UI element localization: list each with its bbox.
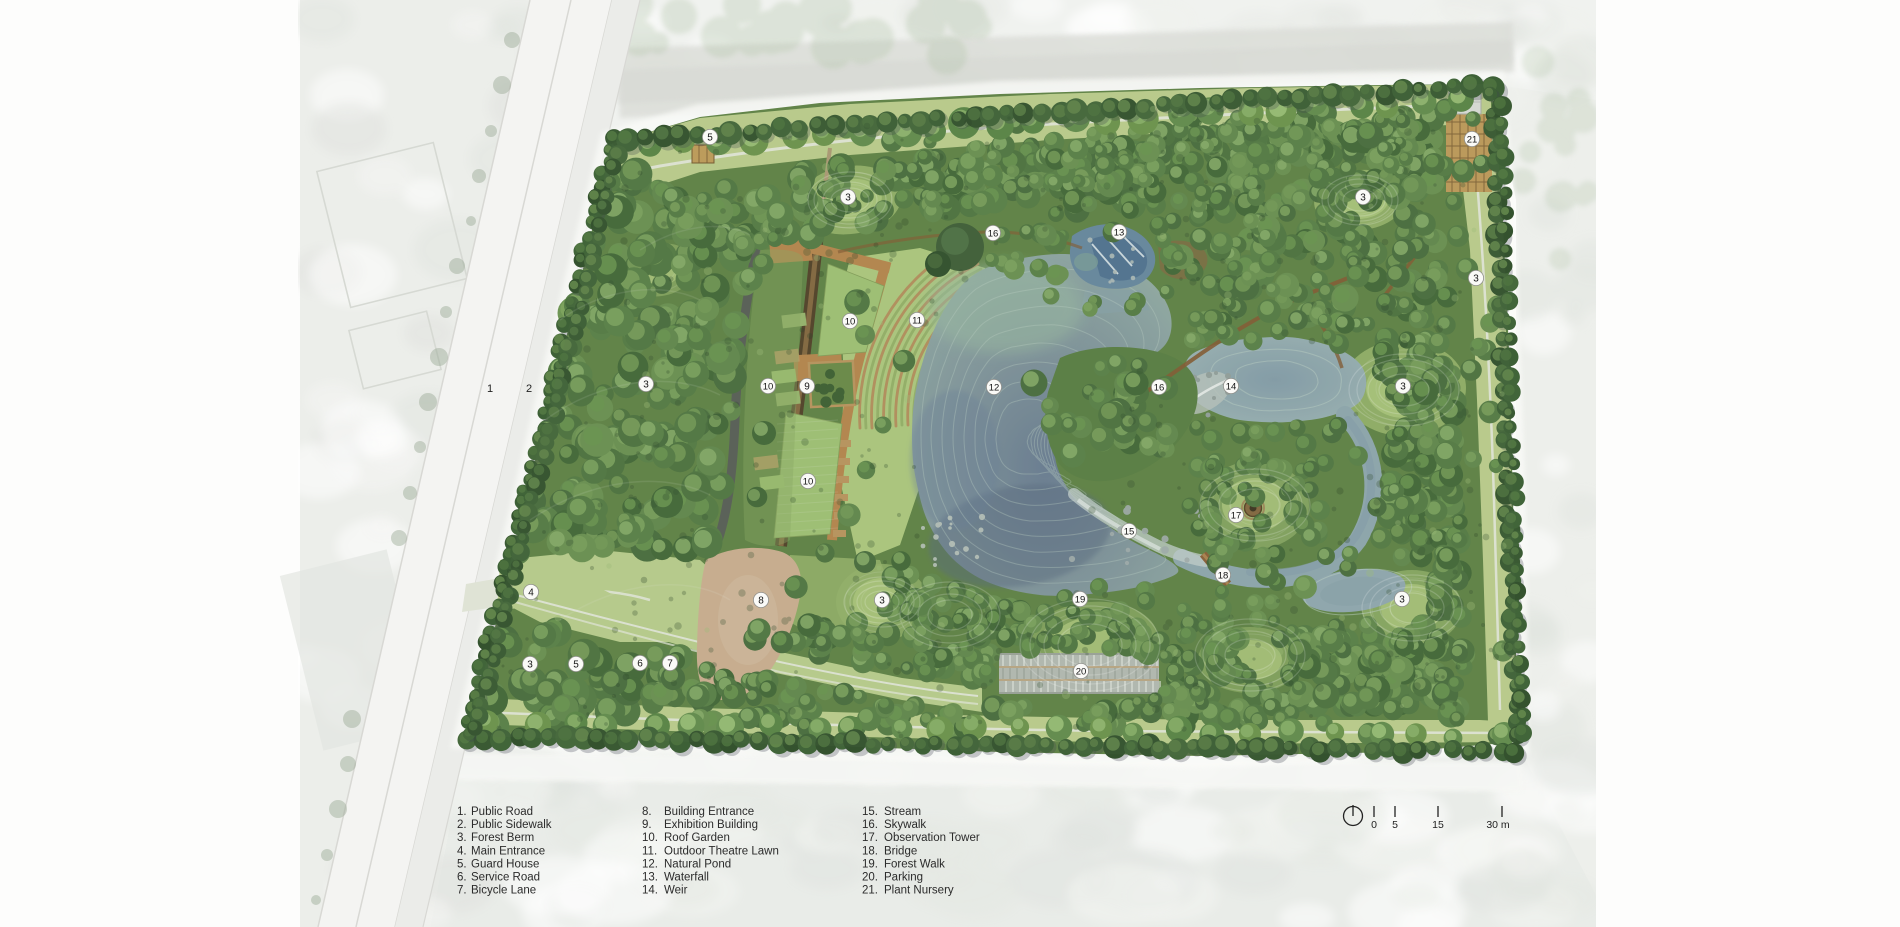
svg-text:7: 7: [667, 658, 673, 669]
svg-text:10: 10: [763, 381, 774, 392]
svg-text:20: 20: [1076, 666, 1087, 677]
svg-text:Public Road: Public Road: [471, 806, 533, 818]
svg-text:30 m: 30 m: [1486, 819, 1510, 831]
svg-text:3: 3: [879, 595, 885, 606]
svg-text:4: 4: [528, 587, 534, 598]
svg-text:Exhibition Building: Exhibition Building: [664, 819, 758, 831]
svg-text:Bridge: Bridge: [884, 845, 917, 857]
svg-text:16: 16: [1154, 382, 1165, 393]
svg-text:Forest Berm: Forest Berm: [471, 832, 534, 844]
svg-text:Skywalk: Skywalk: [884, 819, 926, 831]
svg-text:3: 3: [643, 379, 649, 390]
svg-text:10: 10: [803, 476, 814, 487]
svg-text:1.: 1.: [457, 806, 467, 818]
svg-text:6: 6: [637, 658, 643, 669]
svg-text:Bicycle Lane: Bicycle Lane: [471, 885, 536, 897]
svg-text:18.: 18.: [862, 845, 878, 857]
svg-text:6.: 6.: [457, 872, 467, 884]
svg-text:16: 16: [988, 228, 999, 239]
svg-text:17.: 17.: [862, 832, 878, 844]
svg-text:5: 5: [707, 132, 713, 143]
svg-text:3: 3: [1473, 273, 1479, 284]
svg-text:19: 19: [1075, 594, 1086, 605]
svg-text:19.: 19.: [862, 858, 878, 870]
svg-text:11: 11: [912, 315, 922, 326]
svg-text:Natural Pond: Natural Pond: [664, 858, 731, 870]
svg-text:Forest Walk: Forest Walk: [884, 858, 945, 870]
svg-text:3: 3: [1360, 192, 1366, 203]
svg-text:14: 14: [1226, 381, 1237, 392]
svg-text:5: 5: [1392, 819, 1398, 831]
svg-text:17: 17: [1231, 510, 1242, 521]
svg-text:Plant Nursery: Plant Nursery: [884, 885, 954, 897]
svg-text:Waterfall: Waterfall: [664, 872, 709, 884]
svg-text:10: 10: [845, 316, 856, 327]
svg-text:12.: 12.: [642, 858, 658, 870]
svg-text:12: 12: [989, 382, 1000, 393]
svg-text:2: 2: [526, 383, 532, 395]
svg-text:21: 21: [1467, 134, 1478, 145]
svg-text:7.: 7.: [457, 885, 467, 897]
svg-text:5: 5: [573, 659, 579, 670]
svg-text:18: 18: [1218, 570, 1229, 581]
svg-text:3: 3: [527, 659, 533, 670]
svg-text:Guard House: Guard House: [471, 858, 539, 870]
svg-text:Weir: Weir: [664, 885, 688, 897]
svg-text:Public Sidewalk: Public Sidewalk: [471, 819, 552, 831]
svg-text:11.: 11.: [642, 845, 657, 857]
svg-text:16.: 16.: [862, 819, 878, 831]
svg-text:15: 15: [1124, 526, 1135, 537]
svg-text:13: 13: [1114, 227, 1125, 238]
svg-text:8.: 8.: [642, 806, 652, 818]
svg-text:Outdoor Theatre Lawn: Outdoor Theatre Lawn: [664, 845, 779, 857]
svg-text:4.: 4.: [457, 845, 467, 857]
svg-text:8: 8: [758, 595, 764, 606]
svg-text:2.: 2.: [457, 819, 467, 831]
svg-text:3: 3: [1399, 594, 1405, 605]
svg-text:13.: 13.: [642, 872, 658, 884]
svg-text:0: 0: [1371, 819, 1377, 831]
svg-text:3: 3: [845, 192, 851, 203]
svg-text:3: 3: [1400, 381, 1406, 392]
svg-text:14.: 14.: [642, 885, 658, 897]
svg-text:3.: 3.: [457, 832, 467, 844]
svg-text:20.: 20.: [862, 872, 878, 884]
svg-text:15.: 15.: [862, 806, 878, 818]
svg-text:10.: 10.: [642, 832, 658, 844]
svg-text:9.: 9.: [642, 819, 652, 831]
svg-text:Stream: Stream: [884, 806, 921, 818]
svg-text:Building Entrance: Building Entrance: [664, 806, 754, 818]
svg-text:Service Road: Service Road: [471, 872, 540, 884]
svg-text:1: 1: [487, 383, 493, 395]
svg-text:9: 9: [804, 381, 810, 392]
svg-text:Observation Tower: Observation Tower: [884, 832, 980, 844]
svg-text:Parking: Parking: [884, 872, 923, 884]
svg-text:5.: 5.: [457, 858, 467, 870]
svg-text:21.: 21.: [862, 885, 878, 897]
svg-text:Main Entrance: Main Entrance: [471, 845, 545, 857]
svg-text:15: 15: [1432, 819, 1444, 831]
svg-text:Roof Garden: Roof Garden: [664, 832, 730, 844]
